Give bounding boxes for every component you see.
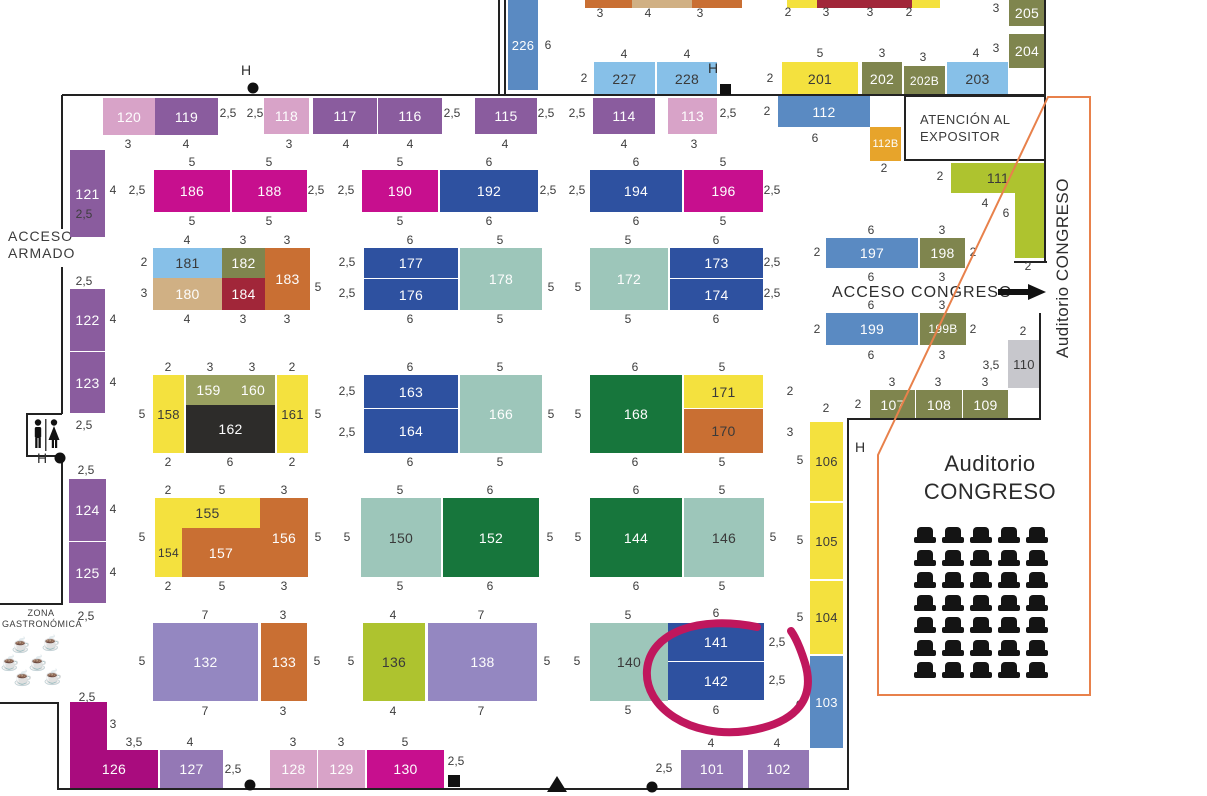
booth-130: 130 [367, 750, 444, 788]
booth-155: 155 [155, 498, 260, 528]
entrance-dot-marker [647, 782, 658, 793]
booth-162: 162 [186, 405, 275, 453]
dimension-label: 2 [764, 104, 771, 118]
dimension-label: 2 [970, 322, 977, 336]
seat-icon [1001, 617, 1017, 629]
dimension-label: 3 [993, 41, 1000, 55]
coffee-cup-icon: ☕ [44, 668, 63, 686]
seat-icon [945, 595, 961, 607]
booth-199B: 199B [920, 313, 966, 345]
dimension-label: 4 [184, 312, 191, 326]
booth-163: 163 [364, 375, 458, 408]
dimension-label: 6 [796, 698, 803, 712]
booth-partial [1015, 193, 1045, 258]
dimension-label: 2 [1020, 324, 1027, 338]
booth-101: 101 [681, 750, 743, 788]
dimension-label: 2,5 [339, 384, 356, 398]
dimension-label: 4 [390, 704, 397, 718]
dimension-label: 6 [486, 214, 493, 228]
acceso-armado-label: ACCESO ARMADO [8, 228, 75, 262]
dimension-label: 2,5 [78, 463, 95, 477]
dimension-label: 5 [548, 280, 555, 294]
booth-125: 125 [69, 542, 106, 603]
dimension-label: 4 [502, 137, 509, 151]
dimension-label: 4 [982, 196, 989, 210]
dimension-label: 7 [478, 608, 485, 622]
booth-205: 205 [1009, 0, 1045, 26]
dimension-label: 5 [575, 280, 582, 294]
exhibition-floor-plan: 226227228205204201202202B203112112B12011… [0, 0, 1207, 796]
dimension-label: 3 [281, 483, 288, 497]
seat-icon [1001, 640, 1017, 652]
booth-203: 203 [947, 62, 1008, 95]
booth-181: 181 [153, 248, 222, 278]
booth-136: 136 [363, 623, 425, 701]
dimension-label: 3 [982, 375, 989, 389]
seat-icon [1029, 527, 1045, 539]
dimension-label: 5 [402, 735, 409, 749]
dimension-label: 2 [165, 579, 172, 593]
booth-108: 108 [916, 390, 962, 419]
dimension-label: 5 [548, 407, 555, 421]
booth-174: 174 [670, 279, 763, 310]
dimension-label: 5 [219, 579, 226, 593]
booth-124: 124 [69, 479, 106, 541]
booth-158: 158 [153, 375, 184, 453]
dimension-label: 4 [110, 565, 117, 579]
entrance-arrow-icon [547, 776, 567, 792]
dimension-label: 3 [249, 360, 256, 374]
dimension-label: 4 [184, 233, 191, 247]
dimension-label: 2,5 [308, 183, 325, 197]
dimension-label: 5 [139, 407, 146, 421]
dimension-label: 3 [920, 50, 927, 64]
seat-icon [973, 527, 989, 539]
dimension-label: 5 [770, 530, 777, 544]
booth-194: 194 [590, 170, 682, 212]
dimension-label: 5 [547, 530, 554, 544]
dimension-label: 5 [719, 455, 726, 469]
seat-icon [945, 662, 961, 674]
booth-192: 192 [440, 170, 538, 212]
booth-154: 154 [155, 528, 182, 577]
dimension-label: 5 [397, 155, 404, 169]
seat-icon [917, 550, 933, 562]
seat-icon [1029, 662, 1045, 674]
seat-icon [973, 595, 989, 607]
dimension-label: 3 [280, 608, 287, 622]
dimension-label: 2 [937, 169, 944, 183]
booth-178: 178 [460, 248, 542, 310]
dimension-label: 2,5 [338, 183, 355, 197]
dimension-label: 4 [110, 312, 117, 326]
dimension-label: 5 [719, 483, 726, 497]
dimension-label: 5 [544, 654, 551, 668]
dimension-label: 6 [633, 214, 640, 228]
booth-150: 150 [361, 498, 441, 577]
seat-icon [973, 617, 989, 629]
booth-183: 183 [265, 248, 310, 310]
dimension-label: 4 [343, 137, 350, 151]
dimension-label: 6 [407, 360, 414, 374]
dimension-label: 5 [315, 407, 322, 421]
booth-166: 166 [460, 375, 542, 453]
dimension-label: 4 [407, 137, 414, 151]
dimension-label: 5 [315, 280, 322, 294]
dimension-label: 6 [407, 312, 414, 326]
atencion-expositor-box: ATENCIÓN AL EXPOSITOR [904, 95, 1046, 161]
booth-127: 127 [160, 750, 223, 788]
dimension-label: 5 [625, 608, 632, 622]
seat-icon [1001, 527, 1017, 539]
seat-icon [1001, 550, 1017, 562]
booth-168: 168 [590, 375, 682, 453]
dimension-label: 5 [574, 654, 581, 668]
dimension-label: 2 [165, 455, 172, 469]
wall-segment [1044, 0, 1046, 95]
acceso-armado-line2: ARMADO [8, 245, 75, 262]
booth-107: 107 [870, 390, 915, 419]
dimension-label: 2,5 [339, 286, 356, 300]
booth-141: 141 [668, 623, 764, 661]
dimension-label: 2,5 [569, 183, 586, 197]
dimension-label: 5 [497, 233, 504, 247]
dimension-label: 5 [497, 312, 504, 326]
dimension-label: 2 [814, 322, 821, 336]
auditorio-congreso-title: Auditorio CONGRESO [900, 450, 1080, 506]
dimension-label: 5 [797, 533, 804, 547]
wall-segment [504, 0, 506, 95]
booth-102: 102 [748, 750, 809, 788]
dimension-label: 2 [289, 455, 296, 469]
dimension-label: 3 [125, 137, 132, 151]
dimension-label: 2,5 [764, 255, 781, 269]
dimension-label: 3 [240, 233, 247, 247]
wall-segment [61, 95, 63, 229]
wall-segment [0, 702, 58, 704]
booth-123: 123 [70, 352, 105, 413]
dimension-label: 5 [266, 155, 273, 169]
seat-icon [945, 550, 961, 562]
seat-icon [973, 550, 989, 562]
booth-146: 146 [684, 498, 764, 577]
coffee-cup-icon: ☕ [42, 634, 61, 652]
dimension-label: 3 [280, 704, 287, 718]
booth-partial [632, 0, 692, 8]
seat-icon [917, 595, 933, 607]
dimension-label: 3 [939, 270, 946, 284]
booth-106: 106 [810, 422, 843, 501]
h-marker-label: H [241, 62, 251, 78]
booth-186: 186 [154, 170, 230, 212]
dimension-label: 2,5 [78, 609, 95, 623]
booth-119: 119 [155, 98, 218, 135]
booth-121: 121 [70, 150, 105, 237]
seat-icon [973, 572, 989, 584]
wall-segment [847, 418, 849, 790]
dimension-label: 5 [139, 530, 146, 544]
dimension-label: 6 [868, 298, 875, 312]
dimension-label: 6 [868, 270, 875, 284]
booth-118: 118 [264, 98, 309, 134]
booth-202: 202 [862, 62, 902, 95]
dimension-label: 3 [141, 286, 148, 300]
dimension-label: 3 [290, 735, 297, 749]
dimension-label: 3 [935, 375, 942, 389]
booth-103: 103 [810, 656, 843, 748]
dimension-label: 3 [993, 1, 1000, 15]
dimension-label: 2 [581, 71, 588, 85]
dimension-label: 3,5 [126, 735, 143, 749]
dimension-label: 3 [691, 137, 698, 151]
dimension-label: 4 [110, 375, 117, 389]
dimension-label: 4 [621, 47, 628, 61]
dimension-label: 7 [478, 704, 485, 718]
entrance-dot-marker [55, 453, 66, 464]
seat-icon [1001, 572, 1017, 584]
wall-segment [498, 0, 500, 95]
wall-segment [1044, 160, 1046, 262]
dimension-label: 5 [719, 579, 726, 593]
booth-177: 177 [364, 248, 458, 278]
booth-173: 173 [670, 248, 763, 278]
atencion-line1: ATENCIÓN AL [920, 111, 1044, 128]
booth-144: 144 [590, 498, 682, 577]
booth-198: 198 [920, 238, 965, 268]
dimension-label: 6 [633, 483, 640, 497]
dimension-label: 5 [497, 360, 504, 374]
booth-112: 112 [778, 96, 870, 127]
hydrant-square-marker [448, 775, 460, 787]
dimension-label: 2,5 [79, 690, 96, 704]
dimension-label: 5 [575, 407, 582, 421]
dimension-label: 2 [165, 483, 172, 497]
h-marker-label: H [37, 450, 47, 466]
dimension-label: 5 [219, 483, 226, 497]
dimension-label: 5 [497, 455, 504, 469]
dimension-label: 3,5 [983, 358, 1000, 372]
dimension-label: 5 [817, 46, 824, 60]
booth-182: 182 [222, 248, 265, 278]
booth-204: 204 [1009, 34, 1045, 68]
dimension-label: 3 [207, 360, 214, 374]
booth-201: 201 [782, 62, 858, 95]
zona-line2: GASTRONÓMICA [2, 619, 80, 630]
wall-segment [26, 413, 28, 457]
dimension-label: 6 [632, 360, 639, 374]
dimension-label: 6 [487, 579, 494, 593]
seat-icon [917, 617, 933, 629]
booth-129: 129 [318, 750, 365, 788]
entrance-dot-marker [245, 780, 256, 791]
acceso-armado-line1: ACCESO [8, 228, 75, 245]
dimension-label: 6 [486, 155, 493, 169]
booth-109: 109 [963, 390, 1008, 419]
booth-180: 180 [153, 278, 222, 310]
seat-icon [1029, 572, 1045, 584]
dimension-label: 2,5 [76, 418, 93, 432]
dimension-label: 5 [314, 654, 321, 668]
dimension-label: 6 [713, 233, 720, 247]
booth-188: 188 [232, 170, 307, 212]
seat-icon [1029, 595, 1045, 607]
wall-segment [1039, 313, 1041, 419]
booth-140: 140 [590, 623, 668, 701]
booth-199: 199 [826, 313, 918, 345]
dimension-label: 7 [202, 704, 209, 718]
auditorio-title-line1: Auditorio [900, 450, 1080, 478]
dimension-label: 3 [338, 735, 345, 749]
booth-197: 197 [826, 238, 918, 268]
dimension-label: 4 [684, 47, 691, 61]
dimension-label: 3 [879, 46, 886, 60]
dimension-label: 5 [797, 453, 804, 467]
seat-icon [917, 662, 933, 674]
booth-111: 111 [951, 163, 1045, 193]
dimension-label: 5 [625, 312, 632, 326]
auditorio-title-line2: CONGRESO [900, 478, 1080, 506]
dimension-label: 2 [881, 161, 888, 175]
h-marker-label: H [708, 60, 718, 76]
dimension-label: 5 [315, 530, 322, 544]
dimension-label: 3 [284, 233, 291, 247]
dimension-label: 4 [621, 137, 628, 151]
booth-176: 176 [364, 279, 458, 310]
booth-159: 159 [186, 375, 231, 405]
dimension-label: 4 [110, 502, 117, 516]
dimension-label: 2 [906, 5, 913, 19]
dimension-label: 3 [286, 137, 293, 151]
booth-172: 172 [590, 248, 668, 310]
seat-icon [917, 572, 933, 584]
dimension-label: 3 [823, 5, 830, 19]
dimension-label: 2,5 [569, 106, 586, 120]
dimension-label: 5 [397, 214, 404, 228]
dimension-label: 5 [797, 610, 804, 624]
booth-105: 105 [810, 503, 843, 579]
dimension-label: 5 [344, 530, 351, 544]
wall-segment [26, 413, 62, 415]
dimension-label: 3 [939, 223, 946, 237]
dimension-label: 6 [713, 606, 720, 620]
dimension-label: 5 [139, 654, 146, 668]
acceso-congreso-arrow-head [1028, 284, 1046, 300]
dimension-label: 6 [868, 223, 875, 237]
seat-icon [1001, 595, 1017, 607]
dimension-label: 3 [240, 312, 247, 326]
booth-114: 114 [593, 98, 655, 134]
dimension-label: 6 [633, 579, 640, 593]
seat-icon [945, 640, 961, 652]
dimension-label: 4 [187, 735, 194, 749]
dimension-label: 4 [774, 736, 781, 750]
dimension-label: 3 [939, 348, 946, 362]
wall-segment [57, 702, 59, 790]
dimension-label: 5 [189, 155, 196, 169]
seat-icon [1001, 662, 1017, 674]
booth-161: 161 [277, 375, 308, 453]
dimension-label: 5 [189, 214, 196, 228]
dimension-label: 2,5 [764, 286, 781, 300]
dimension-label: 2,5 [538, 106, 555, 120]
seat-icon [973, 640, 989, 652]
seat-icon [1029, 617, 1045, 629]
wall-segment [57, 788, 849, 790]
dimension-label: 2 [855, 397, 862, 411]
booth-133: 133 [261, 623, 307, 701]
seat-icon [917, 640, 933, 652]
dimension-label: 6 [487, 483, 494, 497]
h-marker-label: H [855, 439, 865, 455]
wall-segment [61, 455, 63, 605]
booth-196: 196 [684, 170, 763, 212]
seat-icon [945, 617, 961, 629]
dimension-label: 5 [397, 579, 404, 593]
booth-170: 170 [684, 409, 763, 453]
dimension-label: 5 [720, 155, 727, 169]
booth-104: 104 [810, 581, 843, 654]
dimension-label: 2 [970, 245, 977, 259]
auditorio-congreso-vertical-label: Auditorio CONGRESO [1053, 178, 1073, 358]
dimension-label: 3 [281, 579, 288, 593]
dimension-label: 3 [110, 717, 117, 731]
dimension-label: 5 [397, 483, 404, 497]
dimension-label: 4 [645, 6, 652, 20]
booth-142: 142 [668, 662, 764, 700]
seat-icon [945, 572, 961, 584]
seat-icon [1029, 550, 1045, 562]
coffee-cup-icon: ☕ [14, 669, 33, 687]
coffee-cup-icon: ☕ [12, 636, 31, 654]
dimension-label: 6 [713, 312, 720, 326]
dimension-label: 2 [165, 360, 172, 374]
dimension-label: 6 [227, 455, 234, 469]
dimension-label: 2 [787, 384, 794, 398]
dimension-label: 2,5 [247, 106, 264, 120]
dimension-label: 2 [289, 360, 296, 374]
dimension-label: 2,5 [339, 255, 356, 269]
booth-partial [912, 0, 940, 8]
wall-segment [0, 603, 62, 605]
dimension-label: 7 [202, 608, 209, 622]
booth-112B: 112B [870, 127, 901, 161]
booth-156: 156 [260, 498, 308, 577]
dimension-label: 3 [284, 312, 291, 326]
booth-157: 157 [182, 528, 260, 577]
dimension-label: 2,5 [339, 425, 356, 439]
dimension-label: 2 [814, 245, 821, 259]
booth-116: 116 [378, 98, 442, 134]
zona-gastronomica-label: ZONA GASTRONÓMICA [2, 608, 80, 630]
dimension-label: 3 [889, 375, 896, 389]
dimension-label: 6 [713, 703, 720, 717]
booth-164: 164 [364, 409, 458, 453]
dimension-label: 3 [867, 5, 874, 19]
dimension-label: 4 [973, 46, 980, 60]
booth-126: 126 [70, 750, 158, 788]
booth-171: 171 [684, 375, 763, 408]
dimension-label: 4 [183, 137, 190, 151]
booth-122: 122 [70, 289, 105, 351]
dimension-label: 6 [407, 455, 414, 469]
booth-226: 226 [508, 0, 538, 90]
booth-117: 117 [313, 98, 377, 134]
hydrant-square-marker [720, 84, 731, 95]
dimension-label: 5 [266, 214, 273, 228]
dimension-label: 5 [720, 214, 727, 228]
dimension-label: 4 [110, 183, 117, 197]
dimension-label: 2,5 [720, 106, 737, 120]
